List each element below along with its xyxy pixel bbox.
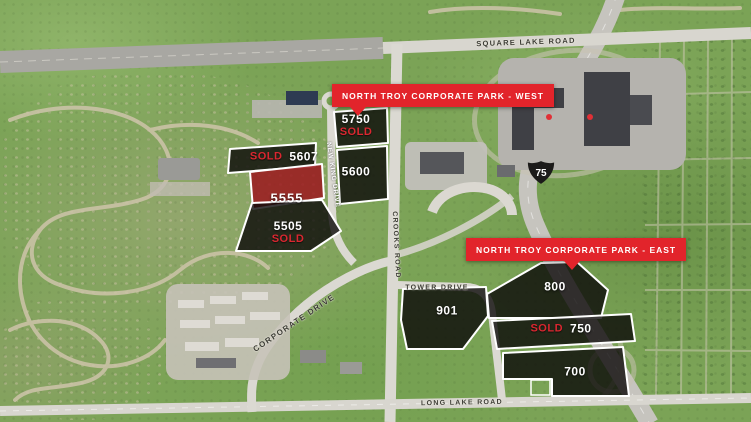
interstate-75-shield: 75 — [527, 160, 555, 185]
shield-number: 75 — [527, 160, 555, 185]
parcel-label-750: SOLD 750 — [530, 323, 591, 336]
parcel-901-overlay — [401, 287, 488, 349]
aerial-map: SQUARE LAKE ROAD LONG LAKE ROAD CROOKS R… — [0, 0, 751, 422]
parcel-label-800: 800 — [544, 281, 566, 294]
banner-west-pointer — [350, 107, 366, 116]
parcel-label-5750: 5750 SOLD — [340, 113, 373, 139]
sold-badge-5505: SOLD — [272, 233, 305, 246]
parcel-label-700: 700 — [564, 366, 586, 379]
banner-east-label: NORTH TROY CORPORATE PARK - EAST — [476, 245, 676, 255]
road-label-long-lake: LONG LAKE ROAD — [421, 399, 503, 407]
sold-badge-5750: SOLD — [340, 126, 373, 139]
parcel-label-5607: SOLD 5607 — [250, 151, 318, 164]
banner-east: NORTH TROY CORPORATE PARK - EAST — [466, 238, 686, 261]
parcel-label-5600: 5600 — [342, 166, 371, 179]
banner-west-label: NORTH TROY CORPORATE PARK - WEST — [342, 91, 544, 101]
parcel-overlays — [0, 0, 751, 422]
sold-badge-5607: SOLD — [250, 151, 283, 164]
parcel-label-5505: 5505 SOLD — [272, 220, 305, 246]
banner-west: NORTH TROY CORPORATE PARK - WEST — [332, 84, 554, 107]
parcel-label-5555: 5555 — [271, 192, 304, 205]
parcel-label-901: 901 — [436, 305, 458, 318]
excluded-lot-outline — [531, 380, 550, 395]
sold-badge-750: SOLD — [530, 323, 563, 336]
road-label-tower: TOWER DRIVE — [405, 285, 469, 292]
banner-east-pointer — [564, 261, 580, 270]
